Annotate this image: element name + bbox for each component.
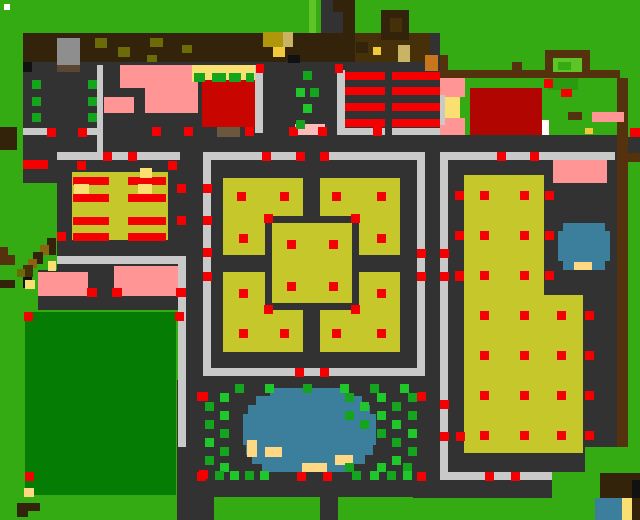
bush: [303, 384, 312, 393]
map-structure: [392, 72, 440, 80]
crop-marker: [480, 271, 489, 280]
crop-marker: [373, 127, 382, 136]
crop-marker: [176, 288, 186, 297]
bush: [205, 402, 214, 411]
map-structure: [320, 152, 425, 160]
map-structure: [553, 160, 607, 183]
crop-marker: [177, 216, 186, 225]
bush: [205, 438, 214, 447]
map-structure: [585, 128, 593, 134]
crop-marker: [557, 391, 566, 400]
map-structure: [57, 256, 180, 264]
map-structure: [309, 0, 316, 33]
map-structure: [437, 70, 620, 78]
map-structure: [440, 55, 448, 72]
bush: [345, 411, 354, 420]
bush: [360, 402, 369, 411]
bush: [392, 402, 401, 411]
crop-marker: [456, 432, 465, 441]
bush: [345, 393, 354, 402]
map-structure: [120, 65, 198, 88]
crop-marker: [545, 271, 554, 280]
map-structure: [440, 152, 615, 160]
map-region: [413, 480, 552, 498]
map-structure: [255, 65, 263, 133]
crop-marker: [103, 152, 112, 161]
bush: [260, 471, 269, 480]
crop-marker: [239, 329, 248, 338]
bush: [370, 471, 379, 480]
map-structure: [563, 223, 605, 231]
map-structure: [632, 480, 640, 498]
bush: [400, 384, 409, 393]
crop-marker: [323, 472, 332, 481]
map-structure: [73, 217, 109, 225]
crop-marker: [329, 240, 338, 249]
map-structure: [628, 153, 640, 162]
bush: [230, 471, 239, 480]
crop-marker: [351, 305, 360, 314]
crop-marker: [78, 128, 87, 137]
bush: [235, 384, 244, 393]
crop-marker: [239, 289, 248, 298]
map-structure: [140, 168, 152, 178]
map-region: [320, 497, 338, 520]
map-structure: [17, 508, 28, 517]
map-structure: [392, 103, 440, 111]
crop-marker: [87, 288, 97, 297]
map-structure: [48, 261, 56, 271]
crop-marker: [440, 272, 449, 281]
map-structure: [392, 128, 440, 135]
map-region: [552, 472, 600, 520]
bush: [205, 420, 214, 429]
crop-marker: [256, 64, 264, 73]
bush: [229, 73, 241, 82]
map-structure: [417, 160, 425, 376]
crop-marker: [320, 368, 329, 377]
map-structure: [17, 269, 25, 277]
map-structure: [104, 97, 134, 113]
bush: [220, 393, 229, 402]
crop-marker: [440, 400, 449, 409]
map-structure: [202, 80, 255, 127]
bush: [408, 447, 417, 456]
crop-marker: [480, 311, 489, 320]
bush: [265, 384, 274, 393]
crop-marker: [112, 288, 122, 297]
map-structure: [345, 119, 385, 127]
crop-marker: [557, 431, 566, 440]
crop-marker: [25, 472, 34, 481]
crop-marker: [318, 127, 327, 136]
crop-marker: [585, 391, 594, 400]
bush: [296, 88, 305, 97]
crop-marker: [128, 152, 137, 161]
map-structure: [592, 112, 624, 122]
map-structure: [333, 0, 355, 12]
map-structure: [440, 160, 448, 472]
crop-marker: [245, 127, 254, 136]
bush: [310, 88, 319, 97]
map-structure: [568, 112, 582, 120]
crop-marker: [585, 351, 594, 360]
map-structure: [283, 32, 293, 47]
crop-marker: [332, 192, 341, 201]
crop-marker: [24, 312, 33, 321]
map-structure: [345, 103, 385, 111]
map-region: [585, 447, 640, 472]
bush: [88, 97, 97, 106]
bush: [32, 113, 41, 122]
map-structure: [558, 231, 610, 261]
map-structure: [57, 38, 80, 65]
crop-marker: [262, 152, 271, 161]
map-structure: [243, 414, 376, 445]
map-structure: [182, 45, 192, 53]
map-structure: [356, 42, 368, 53]
bush: [377, 393, 386, 402]
crop-marker: [485, 472, 494, 481]
crop-marker: [417, 392, 426, 401]
bush: [212, 73, 226, 82]
map-structure: [23, 160, 48, 169]
bush: [220, 447, 229, 456]
bush: [194, 73, 205, 82]
map-structure: [192, 65, 255, 73]
crop-marker: [47, 128, 56, 137]
crop-marker: [329, 282, 338, 291]
crop-marker: [57, 232, 66, 241]
map-structure: [57, 65, 80, 72]
crop-marker: [168, 161, 177, 170]
crop-marker: [287, 240, 296, 249]
map-structure: [178, 256, 186, 447]
bush: [392, 438, 401, 447]
map-structure: [4, 4, 10, 10]
crop-marker: [335, 64, 343, 73]
crop-marker: [203, 272, 212, 281]
map-structure: [114, 266, 178, 296]
map-structure: [118, 47, 130, 57]
crop-marker: [585, 431, 594, 440]
bush: [352, 471, 361, 480]
map-region: [25, 312, 176, 495]
map-structure: [345, 72, 385, 80]
map-structure: [150, 38, 163, 47]
bush: [245, 471, 254, 480]
crop-marker: [239, 234, 248, 243]
map-structure: [24, 488, 34, 497]
map-structure: [337, 70, 345, 135]
map-structure: [217, 127, 240, 137]
map-structure: [128, 194, 166, 202]
crop-marker: [77, 161, 86, 170]
crop-marker: [545, 191, 554, 200]
crop-marker: [264, 214, 273, 223]
bush: [392, 420, 401, 429]
map-structure: [145, 88, 198, 113]
crop-marker: [511, 472, 520, 481]
crop-marker: [203, 184, 212, 193]
map-structure: [273, 47, 285, 57]
map-structure: [73, 233, 109, 241]
map-structure: [622, 498, 632, 520]
bush: [88, 113, 97, 122]
map-structure: [582, 50, 590, 72]
bush: [215, 471, 224, 480]
crop-marker: [377, 192, 386, 201]
crop-marker: [520, 231, 529, 240]
map-structure: [390, 18, 402, 32]
game-map-canvas[interactable]: [0, 0, 640, 520]
crop-marker: [197, 392, 206, 401]
map-structure: [247, 440, 257, 457]
crop-marker: [175, 312, 184, 321]
bush: [360, 420, 369, 429]
crop-marker: [377, 329, 386, 338]
bush: [205, 456, 214, 465]
map-structure: [558, 62, 571, 70]
map-structure: [440, 95, 445, 125]
crop-marker: [197, 472, 206, 481]
map-structure: [445, 97, 460, 120]
crop-marker: [264, 305, 273, 314]
bush: [377, 429, 386, 438]
bush: [303, 71, 312, 80]
map-structure: [203, 368, 425, 376]
crop-marker: [440, 432, 449, 441]
crop-marker: [351, 214, 360, 223]
map-structure: [23, 62, 32, 72]
map-structure: [25, 280, 35, 289]
crop-marker: [455, 271, 464, 280]
map-structure: [425, 55, 438, 71]
map-structure: [392, 87, 440, 95]
map-structure: [464, 175, 544, 295]
crop-marker: [152, 127, 161, 136]
map-structure: [263, 32, 283, 47]
map-structure: [542, 120, 549, 135]
bush: [377, 411, 386, 420]
map-structure: [128, 233, 166, 241]
crop-marker: [287, 282, 296, 291]
map-structure: [0, 255, 15, 265]
crop-marker: [320, 152, 329, 161]
crop-marker: [417, 272, 426, 281]
crop-marker: [520, 391, 529, 400]
crop-marker: [237, 192, 246, 201]
crop-marker: [561, 89, 572, 97]
crop-marker: [203, 216, 212, 225]
crop-marker: [480, 191, 489, 200]
map-structure: [595, 498, 622, 520]
bush: [296, 120, 305, 129]
crop-marker: [520, 191, 529, 200]
crop-marker: [455, 231, 464, 240]
map-structure: [343, 12, 355, 33]
map-structure: [345, 87, 385, 95]
crop-marker: [377, 289, 386, 298]
map-structure: [512, 62, 522, 78]
bush: [32, 97, 41, 106]
map-structure: [272, 223, 352, 303]
map-structure: [147, 55, 157, 62]
map-structure: [73, 194, 109, 202]
crop-marker: [417, 472, 426, 481]
map-structure: [211, 152, 305, 160]
bush: [220, 429, 229, 438]
crop-marker: [440, 249, 449, 258]
crop-marker: [332, 329, 341, 338]
crop-marker: [520, 311, 529, 320]
crop-marker: [520, 271, 529, 280]
map-structure: [95, 38, 107, 48]
crop-marker: [520, 351, 529, 360]
map-structure: [470, 88, 542, 135]
crop-marker: [480, 231, 489, 240]
bush: [340, 384, 349, 393]
map-structure: [574, 262, 592, 270]
crop-marker: [530, 152, 539, 161]
map-structure: [398, 45, 410, 62]
map-structure: [392, 119, 440, 127]
crop-marker: [557, 311, 566, 320]
crop-marker: [557, 351, 566, 360]
crop-marker: [295, 368, 304, 377]
map-structure: [23, 128, 47, 135]
bush: [32, 80, 41, 89]
map-structure: [265, 447, 282, 457]
bush: [408, 429, 417, 438]
map-structure: [302, 463, 327, 472]
crop-marker: [280, 329, 289, 338]
crop-marker: [480, 391, 489, 400]
crop-marker: [417, 249, 426, 258]
crop-marker: [177, 184, 186, 193]
crop-marker: [480, 431, 489, 440]
bush: [246, 73, 254, 82]
bush: [387, 471, 396, 480]
crop-marker: [545, 231, 554, 240]
map-structure: [38, 272, 88, 296]
map-structure: [128, 217, 166, 225]
map-structure: [0, 280, 15, 288]
map-structure: [617, 78, 628, 447]
crop-marker: [377, 234, 386, 243]
bush: [88, 80, 97, 89]
bush: [392, 456, 401, 465]
map-structure: [97, 65, 103, 160]
map-structure: [288, 55, 300, 63]
bush: [408, 411, 417, 420]
map-structure: [57, 152, 180, 160]
crop-marker: [296, 152, 305, 161]
bush: [408, 393, 417, 402]
map-structure: [0, 127, 17, 150]
map-region: [177, 497, 214, 520]
crop-marker: [585, 311, 594, 320]
bush: [220, 411, 229, 420]
crop-marker: [297, 472, 306, 481]
crop-marker: [497, 152, 506, 161]
crop-marker: [520, 431, 529, 440]
bush: [403, 471, 412, 480]
map-structure: [138, 184, 152, 194]
bush: [303, 104, 312, 113]
crop-marker: [455, 191, 464, 200]
crop-marker: [280, 192, 289, 201]
map-structure: [545, 50, 553, 72]
map-structure: [87, 128, 103, 135]
map-structure: [440, 472, 552, 480]
crop-marker: [184, 127, 193, 136]
crop-marker: [630, 128, 640, 137]
crop-marker: [480, 351, 489, 360]
bush: [370, 384, 379, 393]
map-structure: [74, 184, 89, 194]
crop-marker: [544, 79, 553, 88]
crop-marker: [203, 248, 212, 257]
map-structure: [373, 47, 381, 55]
